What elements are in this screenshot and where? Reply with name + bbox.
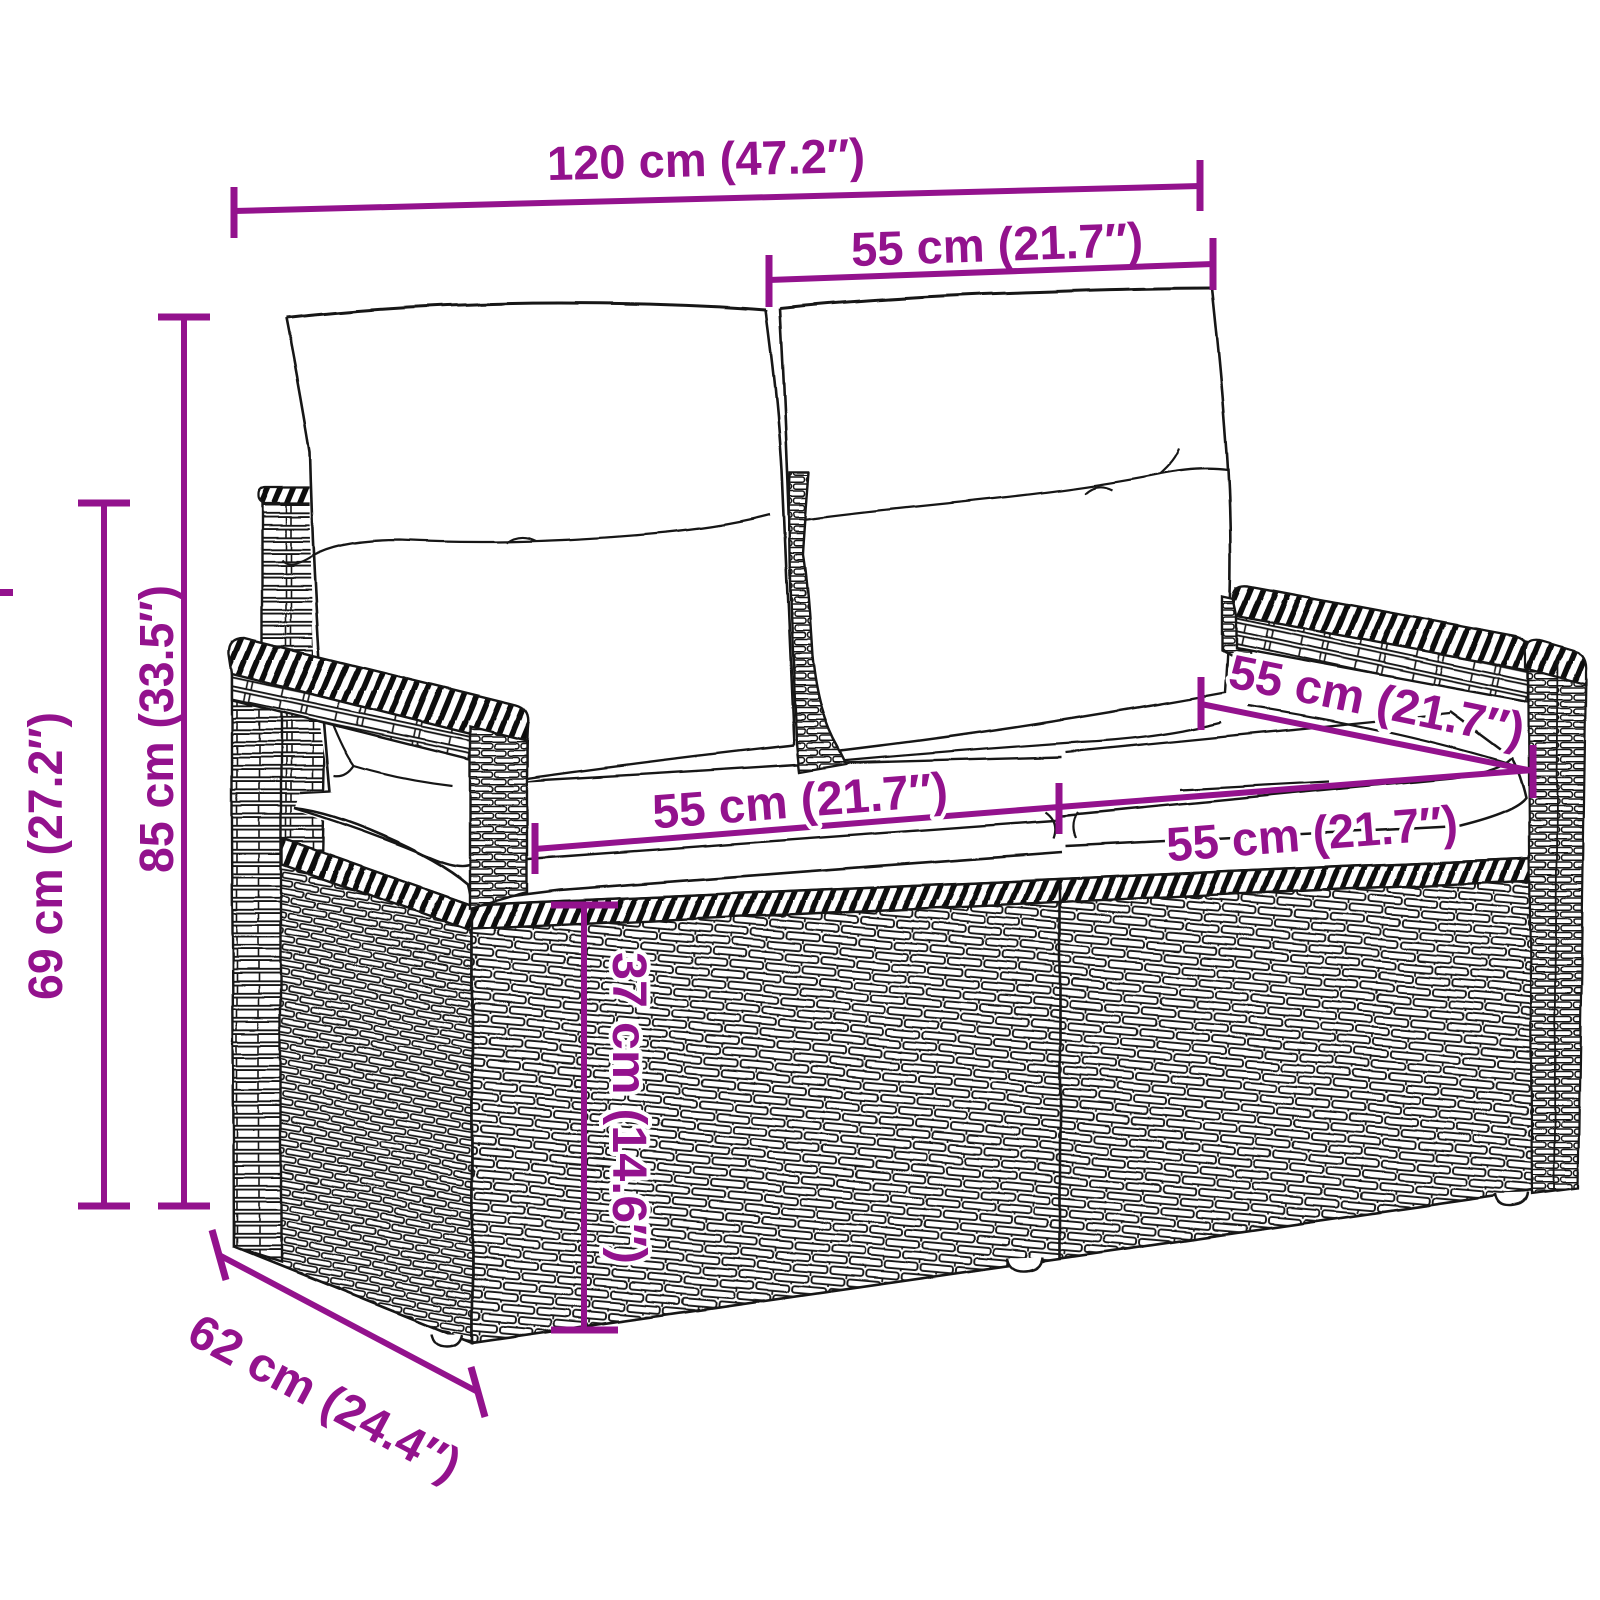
svg-text:69 cm (27.2″): 69 cm (27.2″) bbox=[20, 712, 73, 1000]
svg-text:37 cm (14.6″): 37 cm (14.6″) bbox=[602, 952, 655, 1264]
svg-text:55 cm (21.7″): 55 cm (21.7″) bbox=[850, 214, 1144, 277]
svg-text:62 cm (24.4″): 62 cm (24.4″) bbox=[179, 1305, 469, 1493]
svg-text:85 cm (33.5″): 85 cm (33.5″) bbox=[131, 585, 184, 873]
svg-text:120 cm (47.2″): 120 cm (47.2″) bbox=[546, 130, 865, 191]
